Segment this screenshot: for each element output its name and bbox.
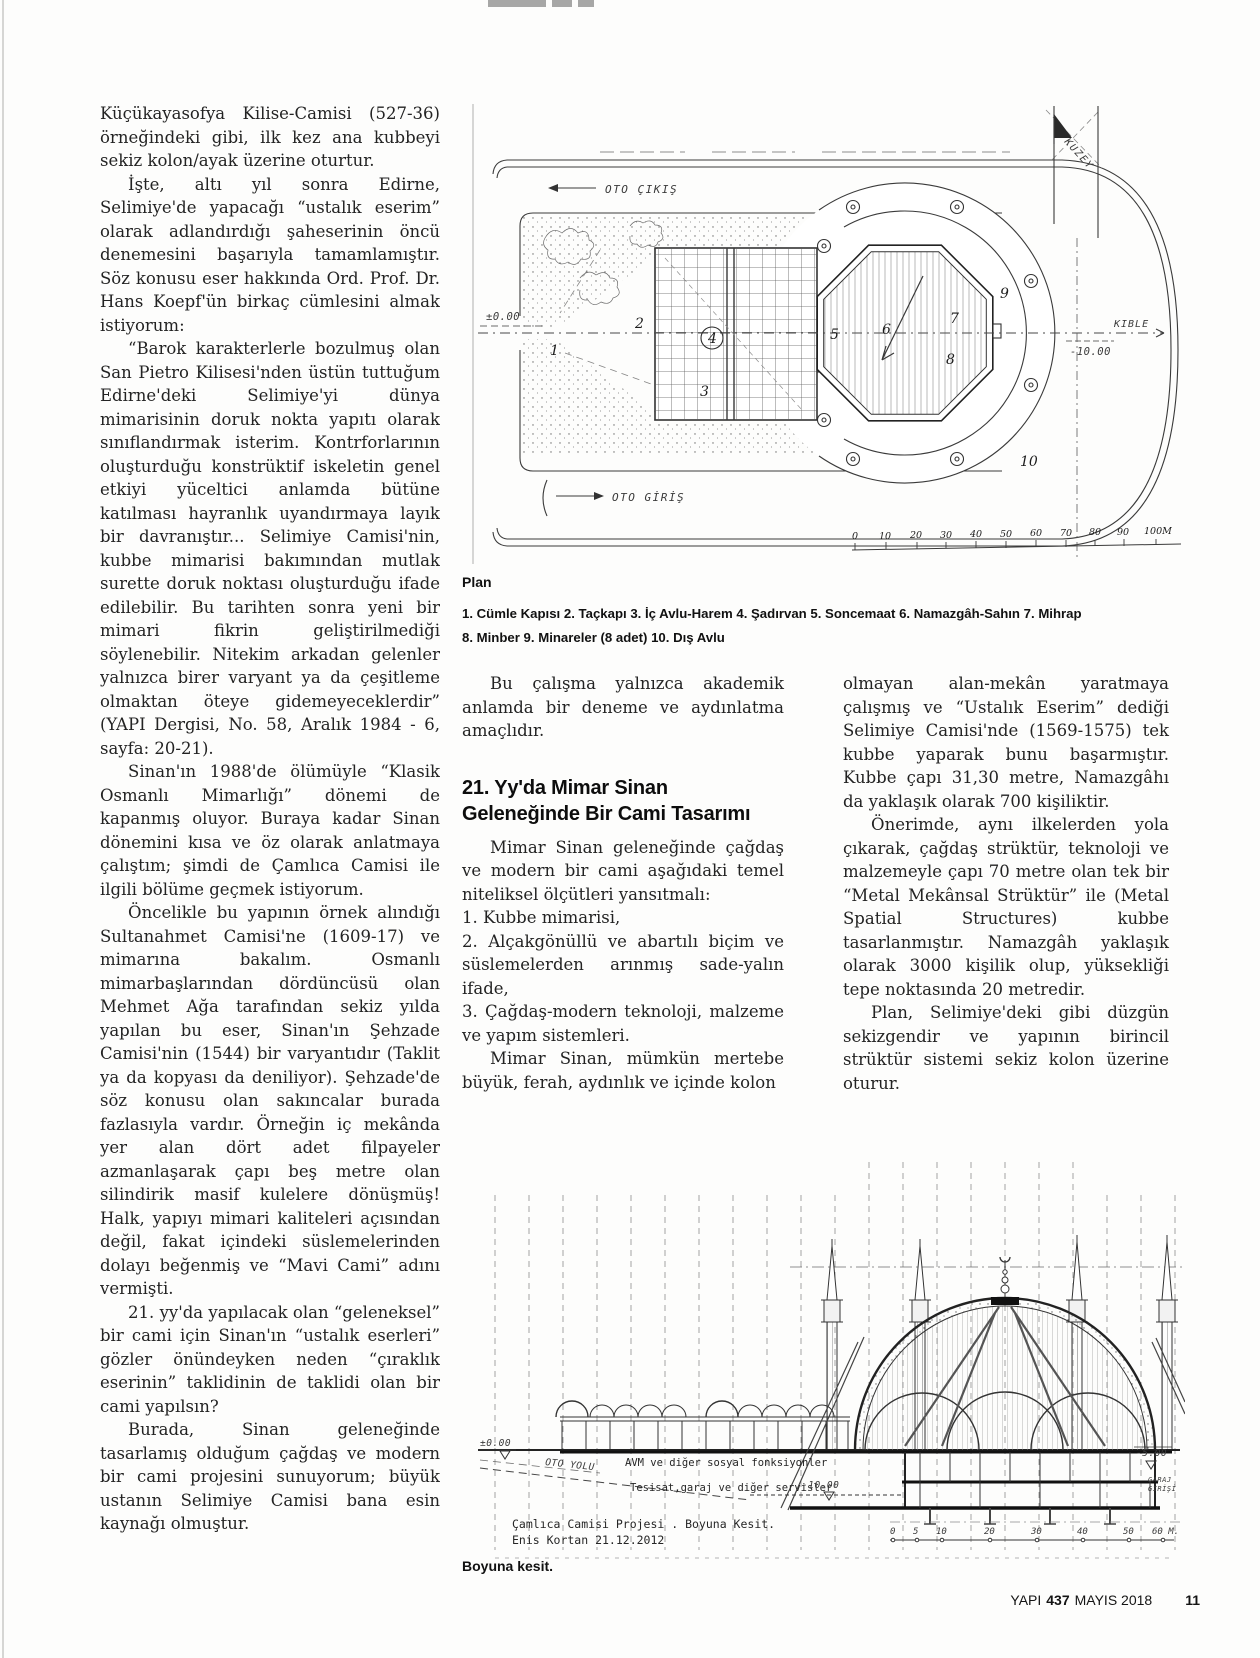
svg-text:50: 50 [1123,1527,1134,1537]
svg-text:80: 80 [1089,527,1101,538]
plan-label-level-zero: ±0.00 [486,311,520,323]
plan-legend-line2: 8. Minber 9. Minareler (8 adet) 10. Dış … [462,630,1172,645]
plan-label-kible: KIBLE [1113,319,1149,330]
list-item: 2. Alçakgönüllü ve abartılı biçim ve süs… [462,930,784,1001]
label-level-zero: ±0.00 [480,1438,511,1449]
paragraph: Mimar Sinan geleneğinde çağdaş ve modern… [462,836,784,907]
plan-number-8: 8 [946,352,955,368]
header-remnant [552,0,572,7]
oto-giris-arrow [543,480,604,516]
plan-number-10: 10 [1020,454,1038,470]
plan-scale-bar [852,539,1181,550]
paragraph: Sinan'ın 1988'de ölümüyle “Klasik Osmanl… [100,760,440,901]
header-remnant [488,0,546,7]
svg-text:50: 50 [1000,529,1012,540]
section-drawing: AVM ve diğer sosyal fonksiyonler Tesisat… [450,1150,1185,1565]
label-oto-yolu: OTO YOLU [545,1457,596,1473]
paragraph: Öncelikle bu yapının örnek alındığı Sult… [100,901,440,1301]
paragraph: Mimar Sinan, mümkün mertebe büyük, ferah… [462,1047,784,1094]
issue-date: MAYIS 2018 [1075,1592,1153,1608]
label-title: Çamlıca Camisi Projesi . Boyuna Kesit. [512,1517,775,1531]
svg-text:0: 0 [890,1527,895,1537]
svg-text:0: 0 [852,531,858,542]
header-remnant [578,0,594,7]
svg-text:60 M.: 60 M. [1152,1527,1179,1537]
dome-keystone [991,1297,1019,1305]
text-column-2: Bu çalışma yalnızca akademik anlamda bir… [462,672,784,1094]
plan-label-oto-giris: OTO GİRİŞ [612,491,685,504]
paragraph: olmayan alan-mekân yaratmaya çalışmış ve… [843,672,1169,813]
label-garaj-1: GARAJ [1148,1476,1172,1484]
magazine-page: Küçükayasofya Kilise-Camisi (527-36) örn… [0,0,1260,1658]
svg-text:70: 70 [1060,528,1072,539]
paragraph: 21. yy'da yapılacak olan “geleneksel” bi… [100,1301,440,1419]
plan-drawing: OTO ÇIKIŞ OTO GİRİŞ KUZEY KIBLE ±0.00 -1… [450,98,1185,568]
svg-text:10: 10 [936,1527,947,1537]
label-author: Enis Kortan 21.12.2012 [512,1533,664,1547]
section-scale-numbers: 0 5 10 20 30 40 50 60 M. [890,1527,1179,1537]
paragraph: Plan, Selimiye'deki gibi düzgün sekizgen… [843,1001,1169,1095]
finial-icon [1000,1257,1010,1297]
paragraph: “Barok karakterlerle bozulmuş olan San P… [100,337,440,760]
basement [790,1452,1160,1524]
section-scale-bar [890,1538,1174,1542]
courtyard-grid [655,248,817,420]
list-item: 3. Çağdaş-modern teknoloji, malzeme ve y… [462,1000,784,1047]
svg-text:5: 5 [913,1527,918,1537]
paragraph: İşte, altı yıl sonra Edirne, Selimiye'de… [100,173,440,338]
svg-text:40: 40 [969,529,982,540]
plan-caption: Plan [462,574,492,590]
dome [855,1257,1155,1450]
svg-text:90: 90 [1117,527,1129,538]
svg-text:30: 30 [1030,1527,1042,1537]
text-column-3: olmayan alan-mekân yaratmaya çalışmış ve… [843,672,1169,1095]
plan-label-oto-cikis-icon: OTO ÇIKIŞ [605,183,678,196]
plan-number-5: 5 [830,327,839,343]
svg-text:40: 40 [1077,1527,1088,1537]
label-avm: AVM ve diğer sosyal fonksiyonler [625,1457,827,1469]
plan-legend-line1: 1. Cümle Kapısı 2. Taçkapı 3. İç Avlu-Ha… [462,606,1172,621]
svg-text:20: 20 [984,1527,995,1537]
label-level-minus5: -5.00 [1136,1448,1167,1459]
oto-cikis-arrow [548,184,596,192]
journal-name: YAPI [1010,1592,1041,1608]
paragraph: Önerimde, aynı ilkelerden yola çıkarak, … [843,813,1169,1001]
plan-label-kuzey: KUZEY [1061,136,1095,172]
plan-figure: OTO ÇIKIŞ OTO GİRİŞ KUZEY KIBLE ±0.00 -1… [450,98,1185,568]
plan-number-3: 3 [700,384,709,400]
plan-number-9: 9 [1000,286,1009,302]
issue-number: 437 [1046,1592,1069,1608]
avm-arcade [556,1401,850,1450]
paragraph: Burada, Sinan geleneğinde tasarlamış old… [100,1418,440,1536]
svg-text:60: 60 [1030,528,1042,539]
label-level-minus10: -10.00 [802,1480,839,1491]
svg-text:10: 10 [879,531,891,542]
list-item: 1. Kubbe mimarisi, [462,906,784,930]
plan-label-level-minus10: -10.00 [1070,346,1111,358]
text-column-1: Küçükayasofya Kilise-Camisi (527-36) örn… [100,102,440,1562]
paragraph: Küçükayasofya Kilise-Camisi (527-36) örn… [100,102,440,173]
plan-number-6: 6 [882,322,891,338]
label-garaj-2: GİRİŞİ [1148,1484,1177,1493]
page-edge-line [2,0,4,1658]
section-heading: 21. Yy'da Mimar Sinan Geleneğinde Bir Ca… [462,775,784,827]
plan-number-7: 7 [950,311,959,327]
plan-number-4: 4 [707,331,717,347]
paragraph: Bu çalışma yalnızca akademik anlamda bir… [462,672,784,743]
section-caption: Boyuna kesit. [462,1558,553,1574]
page-number: 11 [1185,1592,1200,1608]
plan-number-1: 1 [550,343,559,359]
mihrab-mark [993,324,1001,338]
plan-number-2: 2 [634,316,644,332]
section-figure: AVM ve diğer sosyal fonksiyonler Tesisat… [450,1150,1185,1565]
svg-text:30: 30 [940,530,952,541]
page-footer: YAPI 437 MAYIS 2018 11 [1010,1592,1200,1608]
svg-text:100M: 100M [1144,526,1172,537]
svg-text:20: 20 [909,530,922,541]
